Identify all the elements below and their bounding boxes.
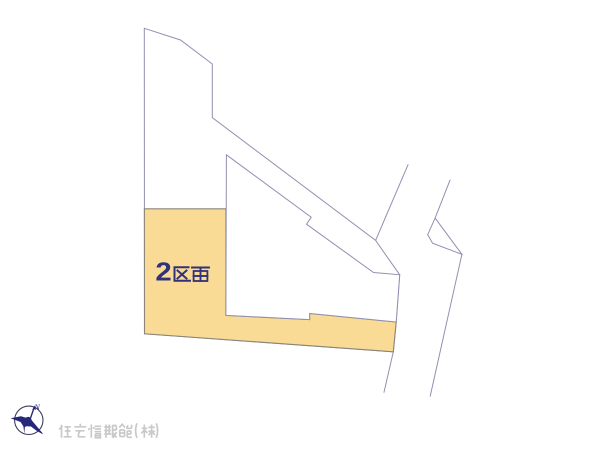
svg-text:2: 2 — [155, 257, 171, 286]
svg-text:N: N — [33, 403, 40, 412]
